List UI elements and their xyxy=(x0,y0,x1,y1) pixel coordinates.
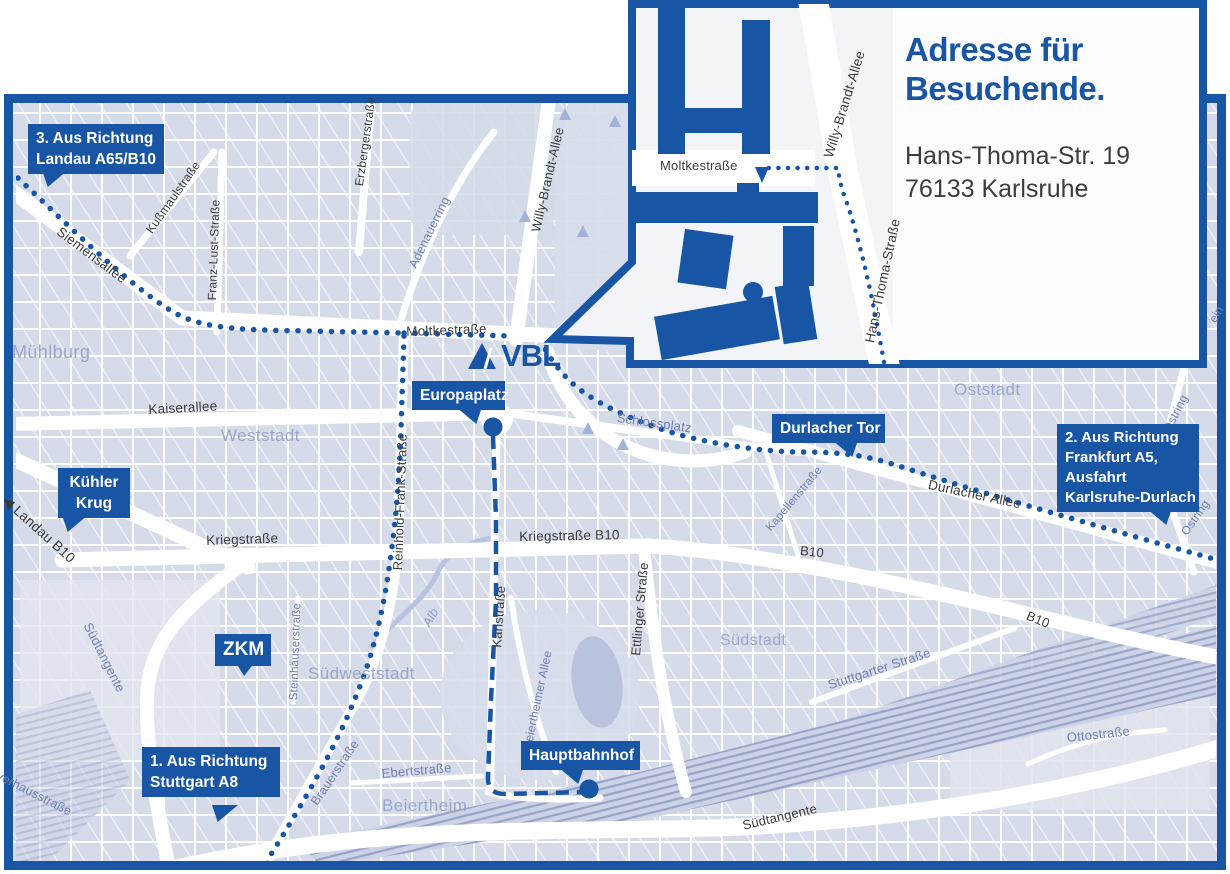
inset-address: Hans-Thoma-Str. 19 76133 Karlsruhe xyxy=(905,140,1130,206)
inset-title: Adresse für Besuchende. xyxy=(905,30,1105,108)
inset-address-line1: Hans-Thoma-Str. 19 xyxy=(905,140,1130,173)
map-background xyxy=(8,94,1226,870)
vbl-triangle-icon xyxy=(466,341,498,371)
karlsruhe-directions-map: { "inset": { "title_line1": "Adresse für… xyxy=(0,0,1230,874)
vbl-logo-text: VBL xyxy=(501,341,560,371)
vbl-logo: VBL xyxy=(466,341,560,371)
inset-title-line1: Adresse für xyxy=(905,30,1105,69)
inset-address-line2: 76133 Karlsruhe xyxy=(905,173,1130,206)
inset-title-line2: Besuchende. xyxy=(905,69,1105,108)
